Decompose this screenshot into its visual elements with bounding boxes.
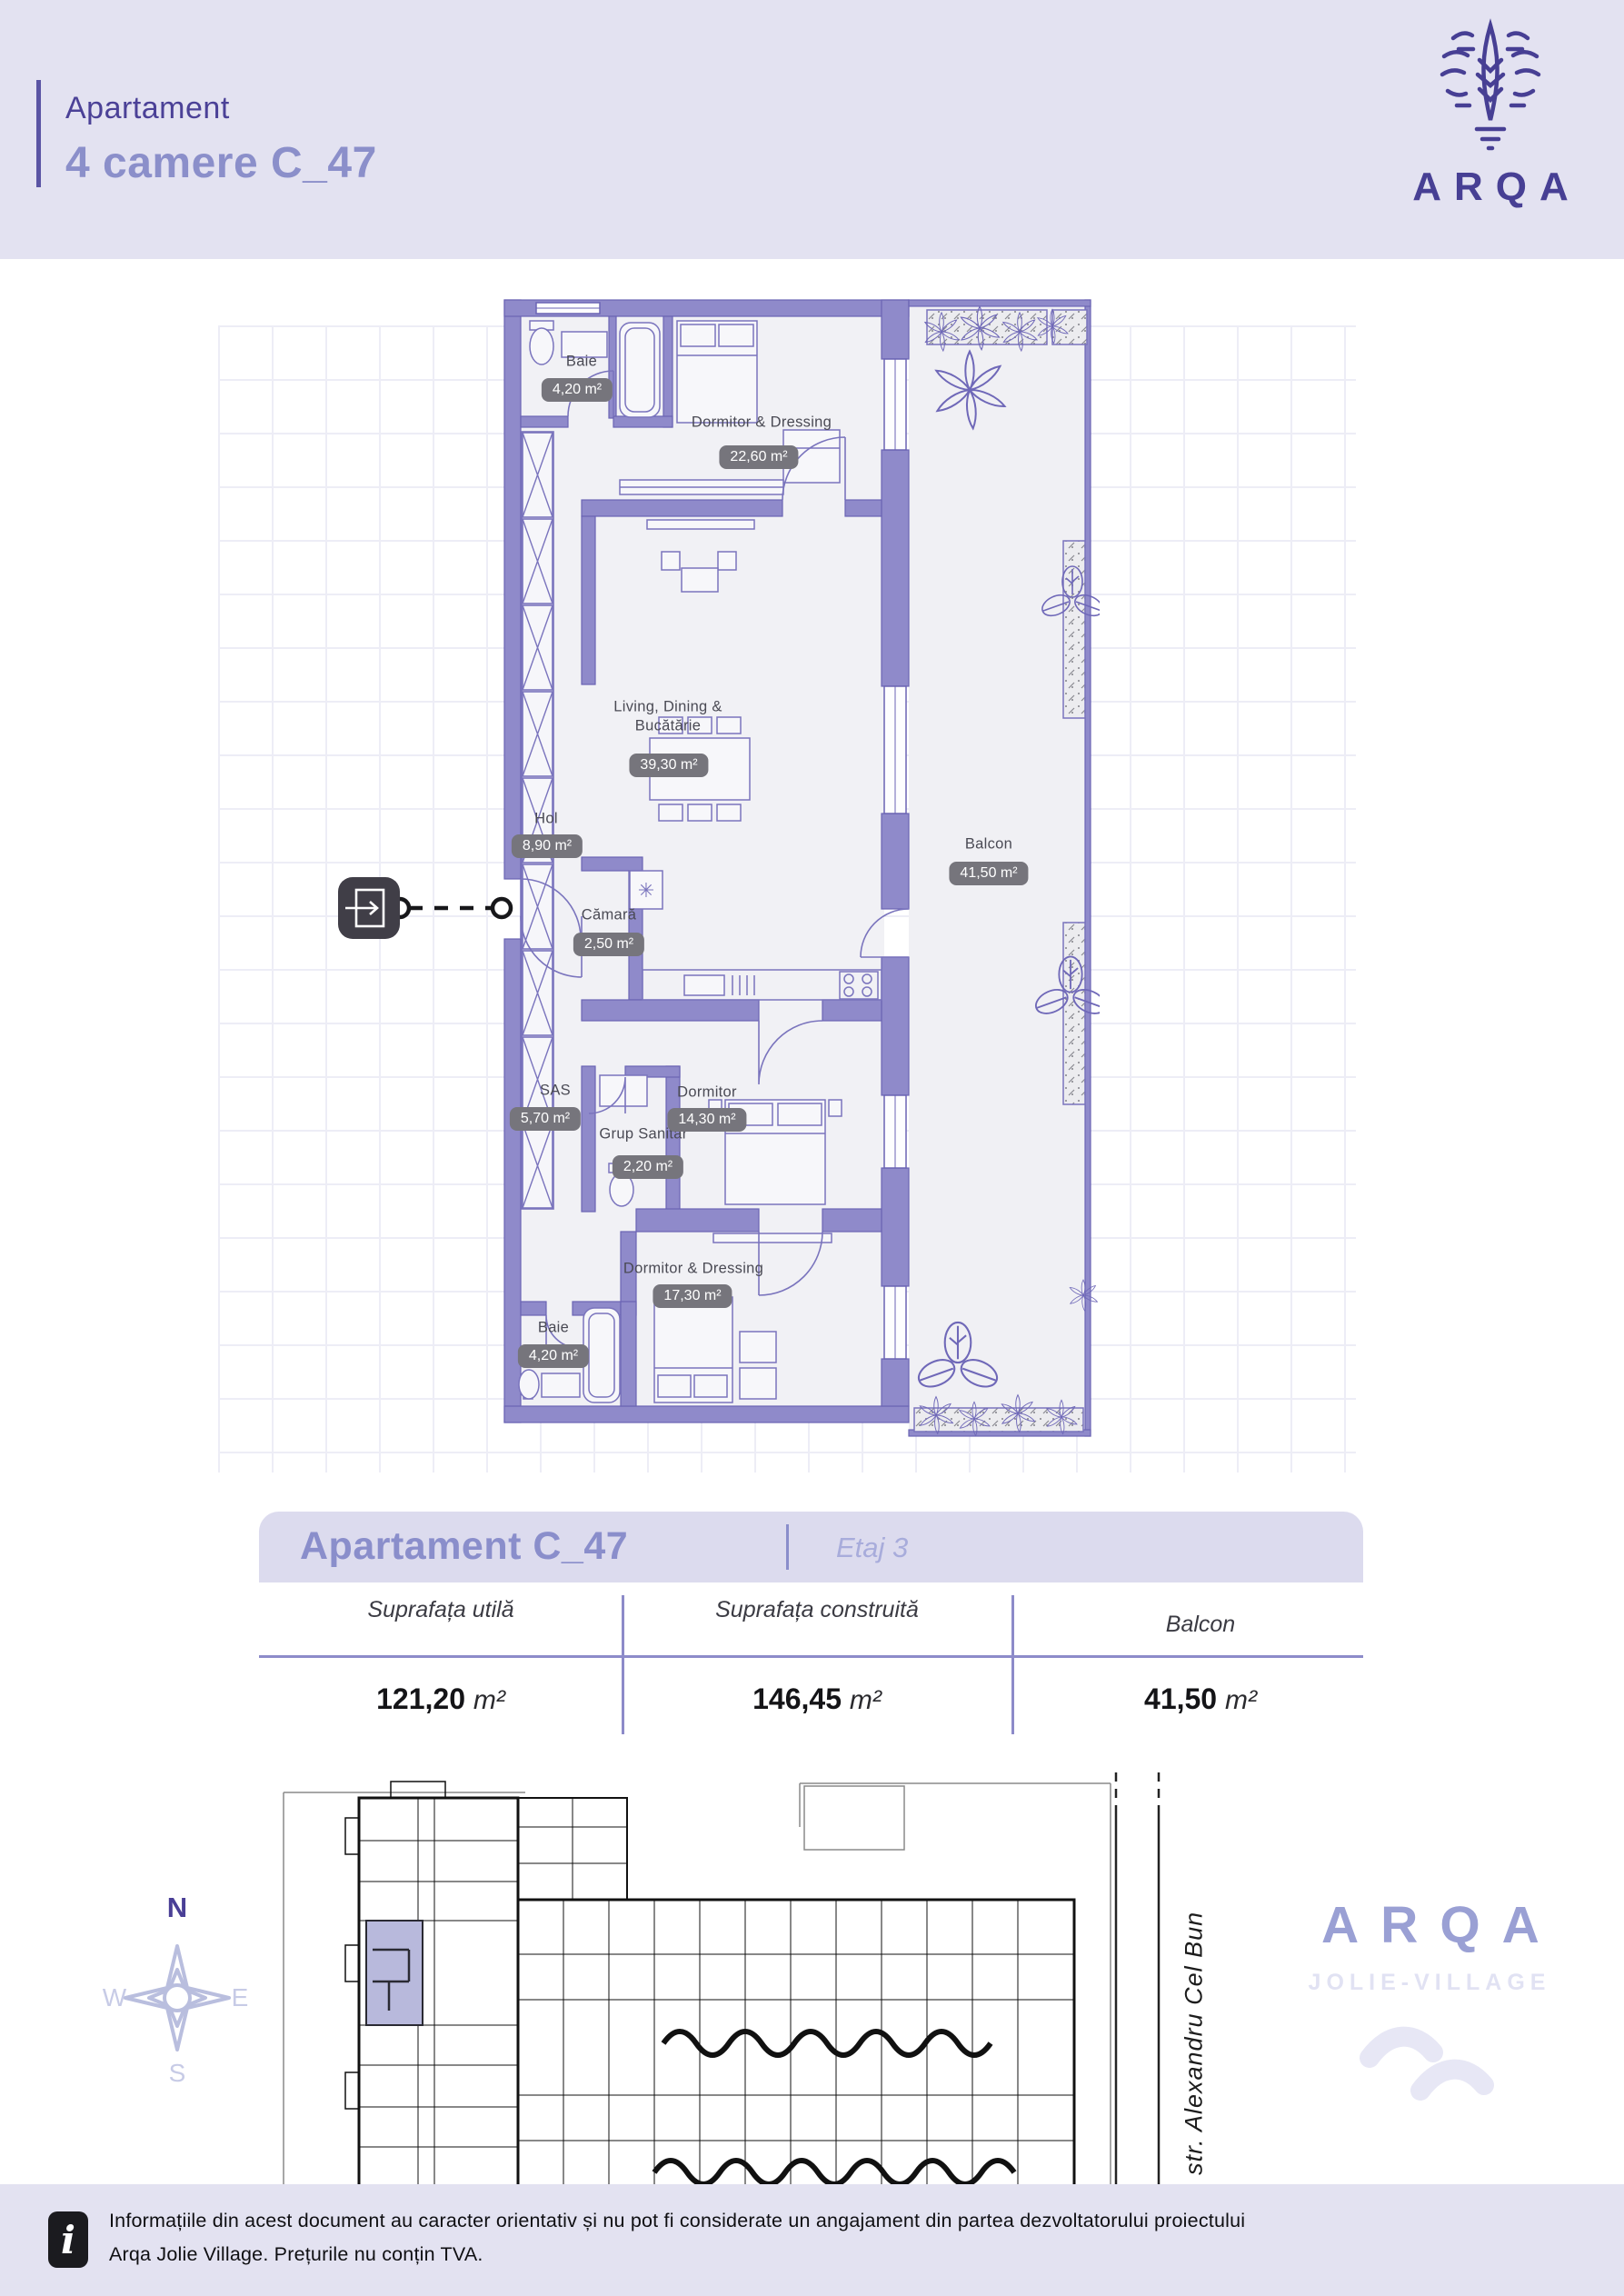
- room-area-badge: 39,30 m²: [629, 754, 708, 777]
- street-lines: [1116, 1772, 1159, 2245]
- disclaimer-bar: i Informațiile din acest document au car…: [0, 2184, 1624, 2296]
- disclaimer-line1: Informațiile din acest document au carac…: [109, 2204, 1245, 2238]
- room-label: Dormitor: [677, 1083, 737, 1103]
- brand-logo-bottom: ARQA JOLIE-VILLAGE: [1300, 1895, 1554, 2124]
- page-title: 4 camere C_47: [65, 138, 377, 188]
- room-label: SAS: [540, 1082, 571, 1101]
- room-area-badge: 4,20 m²: [518, 1344, 589, 1368]
- room-label: Baie: [566, 353, 597, 372]
- apartment-datasheet: Apartament 4 camere C_47: [0, 0, 1624, 2296]
- room-label: Dormitor & Dressing: [623, 1260, 763, 1279]
- header-eyebrow: Apartament: [65, 91, 230, 126]
- unit: m²: [473, 1685, 505, 1715]
- floor-label: Etaj 3: [836, 1532, 908, 1564]
- area-value: 146,45 m²: [663, 1682, 971, 1716]
- room-label: Cămară: [582, 906, 637, 925]
- room-area-badge: 22,60 m²: [719, 445, 798, 469]
- wave-icon: [1350, 2020, 1504, 2120]
- room-label: Baie: [538, 1319, 569, 1338]
- value: 146,45: [752, 1682, 842, 1715]
- divider: [786, 1524, 789, 1570]
- room-area-badge: 4,20 m²: [542, 378, 613, 402]
- column-header: Balcon: [1046, 1595, 1355, 1640]
- column-separator: [1011, 1595, 1014, 1734]
- value: 121,20: [376, 1682, 465, 1715]
- building-main-wing: [518, 1798, 1074, 2191]
- room-label: Dormitor & Dressing: [692, 414, 832, 433]
- room-area-badge: 5,70 m²: [510, 1107, 581, 1131]
- room-label: Living, Dining & Bucătărie: [586, 697, 750, 734]
- summary-title: Apartament C_47: [300, 1524, 628, 1569]
- disclaimer-text: Informațiile din acest document au carac…: [109, 2204, 1245, 2271]
- street-label: str. Alexandru Cel Bun: [1175, 1886, 1213, 2200]
- accent-bar: [36, 80, 41, 187]
- area-value: 121,20 m²: [286, 1682, 595, 1716]
- room-area-badge: 17,30 m²: [653, 1284, 732, 1308]
- column-header: Suprafața construită: [663, 1595, 971, 1625]
- brand-name: ARQA: [1300, 1895, 1554, 1955]
- summary-header: Apartament C_47 Etaj 3: [259, 1512, 1363, 1582]
- unit: m²: [850, 1685, 882, 1715]
- brand-name: ARQA: [1372, 165, 1609, 210]
- brand-subtitle: JOLIE-VILLAGE: [1300, 1970, 1554, 1996]
- area-value: 41,50 m²: [1046, 1682, 1355, 1716]
- room-area-badge: 14,30 m²: [667, 1108, 746, 1132]
- arqa-emblem-icon: [1422, 18, 1559, 155]
- compass-w: W: [103, 1983, 127, 2011]
- compass-s: S: [169, 2059, 186, 2087]
- entrance-marker: [338, 877, 511, 939]
- column-separator: [622, 1595, 624, 1734]
- site-plan: [273, 1772, 1181, 2245]
- room-area-badge: 8,90 m²: [512, 834, 583, 858]
- header-banner: Apartament 4 camere C_47: [0, 0, 1624, 259]
- disclaimer-line2: Arqa Jolie Village. Prețurile nu conțin …: [109, 2238, 1245, 2271]
- unit: m²: [1225, 1685, 1257, 1715]
- highlighted-unit: [366, 1921, 423, 2025]
- summary-table: Apartament C_47 Etaj 3 Suprafața utilă S…: [259, 1512, 1363, 1734]
- room-label: Hol: [534, 810, 558, 829]
- compass-e: E: [232, 1983, 249, 2011]
- compass-n: N: [167, 1892, 187, 1923]
- room-area-badge: 2,50 m²: [573, 933, 644, 956]
- fridge-symbol: ✳: [638, 879, 654, 902]
- column-header: Suprafața utilă: [286, 1595, 595, 1625]
- compass-rose-icon: N W E S: [100, 1886, 254, 2091]
- room-area-badge: 2,20 m²: [613, 1155, 683, 1179]
- room-label: Balcon: [965, 835, 1012, 854]
- room-area-badge: 41,50 m²: [949, 862, 1028, 885]
- brand-logo: ARQA: [1372, 18, 1609, 210]
- value: 41,50: [1144, 1682, 1217, 1715]
- row-separator: [259, 1655, 1363, 1658]
- info-icon: i: [48, 2211, 88, 2268]
